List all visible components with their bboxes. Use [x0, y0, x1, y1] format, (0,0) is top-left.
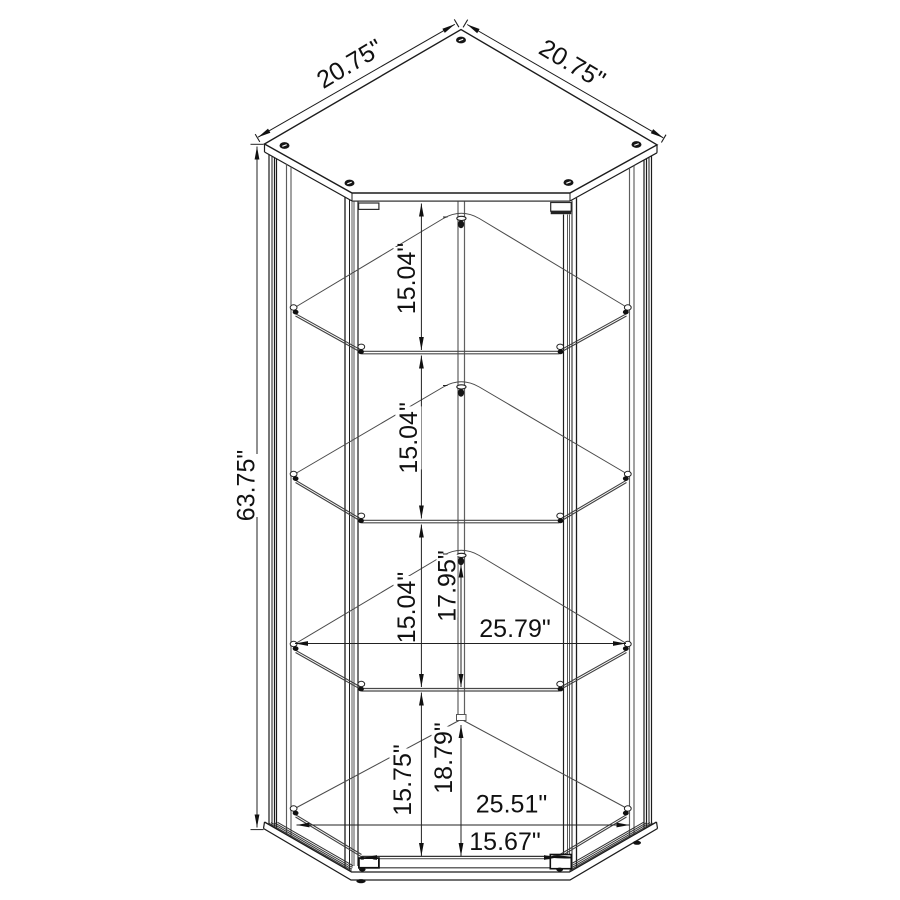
svg-text:63.75": 63.75": [233, 450, 261, 521]
svg-text:15.04": 15.04": [393, 572, 421, 643]
svg-text:25.79": 25.79": [479, 615, 550, 643]
svg-text:17.95": 17.95": [434, 550, 462, 621]
svg-text:15.04": 15.04": [395, 402, 423, 473]
svg-text:15.75": 15.75": [389, 744, 417, 815]
svg-text:18.79": 18.79": [430, 722, 458, 793]
svg-text:15.04": 15.04": [393, 243, 421, 314]
svg-text:25.51": 25.51": [476, 791, 547, 819]
svg-text:15.67": 15.67": [469, 828, 540, 856]
